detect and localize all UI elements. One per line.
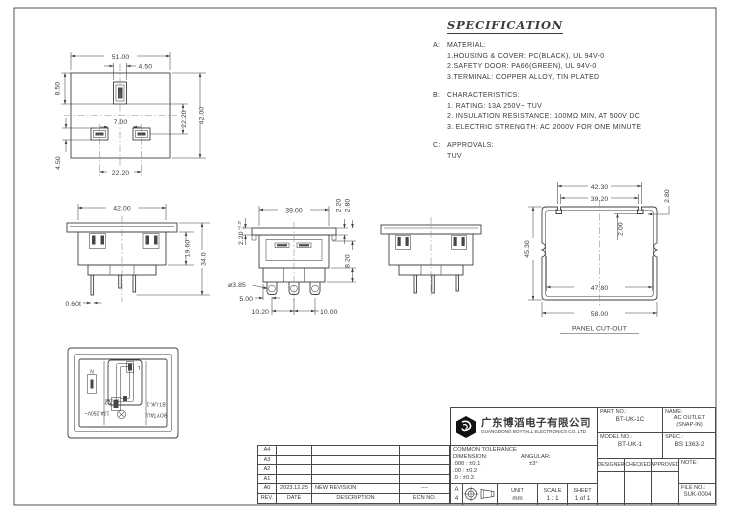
tolerance-0: .0 : ±0.3 [453,475,597,482]
note-label: NOTE: [679,459,716,466]
dim-flange-thickness: 2.20 +0.15 0 [237,221,246,245]
model-no-value: BT-UK-1 [598,441,662,448]
angular-tolerance: ±3° [529,461,538,468]
svg-text:+0.15: +0.15 [237,221,241,230]
rev-cell [312,446,400,456]
dim-notch-outer: 42.30 [591,184,609,191]
dim-notch-inner: 39.20 [591,196,609,203]
rev-cell: ---- [400,484,449,494]
rev-cell: 2023.12.25 [277,484,312,494]
model-no-label: MODEL NO.: [598,433,662,440]
rating-marking: 13A 250V~ [85,410,110,416]
rev-cell [277,456,312,466]
unit-label: UNIT [511,488,524,494]
side-view [381,217,481,298]
dimension-label: DIMENSION: [453,454,487,460]
spec-heading-characteristics: CHARACTERISTICS: [447,91,520,102]
file-no-label: FILE NO.: [679,484,716,491]
rev-header-rev: REV. [258,494,277,504]
paper-size-cell: A 4 [451,484,463,505]
dim-total-height: 34.0 [201,252,208,266]
dim-hole-dia: ø3.85 [228,282,246,289]
spec-line: 3.TERMINAL: COPPER ALLOY, TIN PLATED [447,73,718,84]
spec-section-approvals: C: APPROVALS: TUV [433,141,718,162]
company-name-cn: 广东博滔电子有限公司 [481,418,591,429]
rev-cell [312,456,400,466]
dim-depth: 8.20 [345,254,352,268]
dim-cutout-width: 58.00 [591,311,609,318]
spec-line: TUV [447,152,718,163]
spec-label-c: C: [433,141,447,152]
approved-header: APPROVED [652,459,679,472]
dim-slot-offset: 8.50 [55,82,62,96]
spec-section-material: A: MATERIAL: 1.HOUSING & COVER: PC(BLACK… [433,41,718,83]
tolerance-cell: COMMON TOLERANCE DIMENSION: ANGULAR: .00… [451,446,598,484]
rev-cell [312,465,400,475]
dim-hole-height: 4.50 [55,156,62,170]
bottom-view: 2.20 +0.15 0 39.00 2.20 2.80 8.20 ø3.85 … [228,199,356,316]
company-name-en: GUANGDONG BOYTALL ELECTRONICS CO.,LTD [481,429,591,435]
top-view: 51.00 4.50 8.50 22.20 42.00 7.00 22.20 4… [55,52,207,177]
dim-body-height: 19.60 [185,240,192,258]
spec-label-b: B: [433,91,447,102]
rev-cell: A1 [258,475,277,485]
title-block: 广东博滔电子有限公司 GUANGDONG BOYTALL ELECTRONICS… [450,407,716,504]
dim-slot-width: 4.50 [139,64,153,71]
rev-header-ecn: ECN NO. [400,494,449,504]
standard-marking: BS 1363 [105,398,119,402]
sheet-cell: SHEET 1 of 1 [568,484,598,505]
tolerance-000: .000 : ±0.1 [453,461,480,467]
rev-cell [277,446,312,456]
front-view: 42.00 19.60 34.0 0.60t [65,204,210,308]
projection-symbol-cell [463,484,498,505]
spec-line: 1. RATING: 13A 250V~ TUV [447,102,718,113]
dim-pitch-left: 10.20 [251,309,269,316]
rev-cell [277,465,312,475]
company-cell: 广东博滔电子有限公司 GUANGDONG BOYTALL ELECTRONICS… [451,408,598,446]
tolerance-title: COMMON TOLERANCE [453,447,597,454]
part-no-cell: PART NO.: BT-UK-1C [598,408,663,433]
dim-hole-span: 22.20 [112,170,130,177]
rev-cell [400,465,449,475]
dim-hole-gap: 7.00 [114,119,128,126]
dim-bottom-width: 39.00 [285,208,303,215]
spec-label-a: A: [433,41,447,52]
designer-header: DESIGNER [598,459,625,472]
tolerance-00: .00 : ±0.2 [453,468,597,475]
dim-view-height: 42.00 [199,107,206,125]
dim-top-width: 51.00 [112,54,130,61]
spec-no-cell: SPEC.: BS 1363-2 [663,433,716,459]
rev-cell [312,475,400,485]
line-marking: L [137,364,140,370]
dim-pin-offset: 5.00 [239,296,253,303]
neutral-marking: N [90,368,94,374]
spec-heading-material: MATERIAL: [447,41,486,52]
specification-block: SPECIFICATION A: MATERIAL: 1.HOUSING & C… [433,19,718,170]
rev-cell [277,475,312,485]
dim-front-width: 42.00 [113,206,131,213]
drawing-sheet: 51.00 4.50 8.50 22.20 42.00 7.00 22.20 4… [0,0,738,512]
dim-inner-width: 47.80 [591,285,609,292]
svg-text:2.20: 2.20 [238,231,245,245]
dim-notch-width: 2.80 [664,189,671,203]
paper-size-4: 4 [455,495,458,504]
dim-pitch-right: 10.00 [320,309,338,316]
part-no-value: BT-UK-1C [598,416,662,423]
dim-pin-thickness: 0.60t [65,301,81,308]
dim-cutout-height: 45.30 [524,240,531,258]
dim-slot-to-center: 22.20 [181,110,188,128]
spec-line: 2. INSULATION RESISTANCE: 100MΩ MIN, AT … [447,112,718,123]
angular-label: ANGULAR: [521,454,551,461]
rev-header-description: DESCRIPTION [312,494,400,504]
rev-cell [400,475,449,485]
paper-size-a: A [454,486,458,495]
spec-no-label: SPEC.: [663,433,716,440]
rev-cell: A0 [258,484,277,494]
dim-lip-b: 2.80 [345,199,352,213]
rev-cell: A2 [258,465,277,475]
rev-cell [400,456,449,466]
company-logo [454,415,478,439]
spec-line: 2.SAFETY DOOR: PA66(GREEN), UL 94V-0 [447,62,718,73]
model-no-cell: MODEL NO.: BT-UK-1 [598,433,663,459]
scale-label: SCALE [543,488,561,494]
spec-no-value: BS 1363-2 [663,441,716,448]
note-cell: NOTE: [679,459,716,484]
unit-cell: UNIT mm [498,484,538,505]
unit-value: mm [512,495,522,502]
dim-notch-depth: 2.00 [618,222,625,236]
designer-signature-cell [598,472,625,505]
spec-section-characteristics: B: CHARACTERISTICS: 1. RATING: 13A 250V~… [433,91,718,133]
checked-header: CHECKED [625,459,652,472]
spec-heading-approvals: APPROVALS: [447,141,494,152]
name-label: NAME: [663,408,716,415]
face-view: N L BOYTALL BT-UK-1 13A 250V~ BS 1363 [68,348,178,438]
third-angle-projection-icon [463,484,497,504]
rev-cell: NEW REVISION [312,484,400,494]
specification-title: SPECIFICATION [447,19,563,34]
svg-text:0: 0 [242,227,246,229]
scale-cell: SCALE 1 : 1 [538,484,568,505]
rev-header-date: DATE [277,494,312,504]
sheet-value: 1 of 1 [575,495,590,502]
spec-line: 3. ELECTRIC STRENGTH: AC 2000V FOR ONE M… [447,123,718,134]
name-cell: NAME: AC OUTLET (SNAP-IN) [663,408,716,433]
scale-value: 1 : 1 [546,495,558,502]
panel-cutout-caption: PANEL CUT-OUT [572,326,627,333]
dim-lip-a: 2.20 [336,199,343,213]
file-no-cell: FILE NO.: SUK-0004 [679,484,716,505]
rev-cell: A4 [258,446,277,456]
part-no-label: PART NO.: [598,408,662,415]
revision-table: A4 A3 A2 A1 A0 2023.12.25 NEW REVISION -… [257,445,450,504]
approved-signature-cell [652,472,679,505]
rev-cell [400,446,449,456]
checked-signature-cell [625,472,652,505]
spec-line: 1.HOUSING & COVER: PC(BLACK), UL 94V-0 [447,52,718,63]
brand-marking: BOYTALL [145,412,167,418]
rev-cell: A3 [258,456,277,466]
file-no-value: SUK-0004 [679,492,716,498]
panel-cutout-view: 42.30 39.20 2.80 2.00 45.30 47.80 58.00 … [524,182,671,334]
name-value-line2: (SNAP-IN) [663,422,716,429]
model-marking: BT-UK-1 [146,401,165,407]
sheet-label: SHEET [573,488,591,494]
